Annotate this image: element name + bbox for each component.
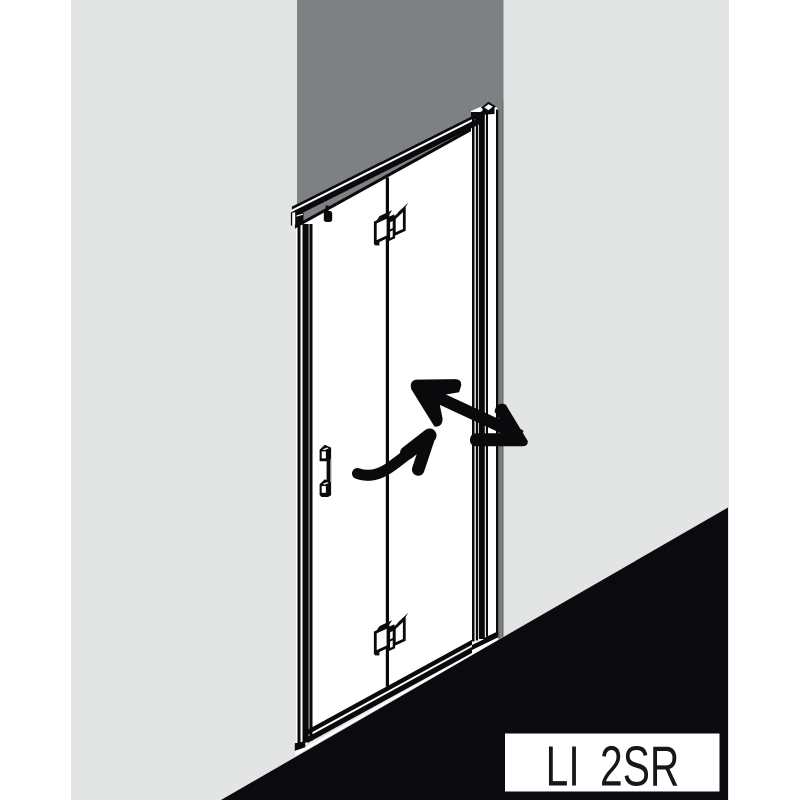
svg-text:LI 2SR: LI 2SR: [546, 735, 680, 798]
